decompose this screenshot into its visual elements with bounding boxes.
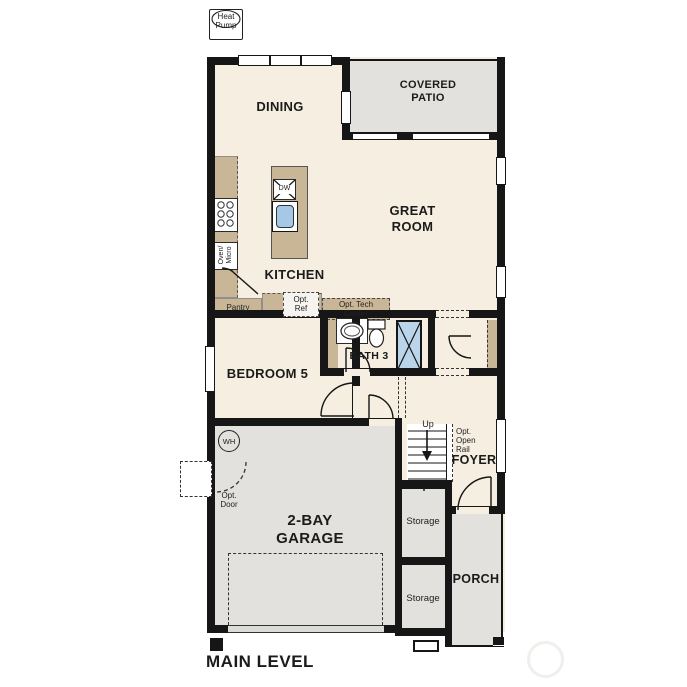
- bath-door-opening: [344, 369, 370, 376]
- main-level-label: MAIN LEVEL: [206, 652, 366, 673]
- patio-slider-east: [412, 133, 490, 140]
- dishwasher-label: DW: [276, 185, 293, 194]
- up-label: Up: [414, 419, 442, 429]
- kitchen-sink-basin: [276, 205, 294, 228]
- porch-post: [493, 637, 504, 648]
- bedroom5-label: BEDROOM 5: [205, 366, 330, 382]
- service-step: [413, 640, 439, 652]
- wall-storage-divider: [401, 557, 446, 565]
- legend-square: [210, 638, 223, 651]
- opt-door-dashed-stoop: [180, 461, 212, 497]
- front-door-opening: [456, 507, 489, 514]
- wall-left: [207, 57, 215, 632]
- dining-label: DINING: [215, 99, 345, 115]
- opt-door-label: Opt. Door: [209, 491, 249, 509]
- bath3-label: BATH 3: [338, 350, 400, 363]
- opt-tech-center-label: Opt. Tech Center: [322, 300, 390, 318]
- porch-label: PORCH: [447, 572, 505, 587]
- kitchen-label: KITCHEN: [262, 267, 327, 283]
- window-greatroom-2: [496, 266, 506, 298]
- patio-slider-west: [352, 133, 398, 140]
- window-greatroom-1: [496, 157, 506, 185]
- garage-label: 2-BAY GARAGE: [245, 512, 375, 549]
- window-mullion: [269, 55, 271, 66]
- foyer-label: FOYER: [445, 453, 503, 468]
- window-mullion: [300, 55, 302, 66]
- opt-ref-box: Opt. Ref: [283, 292, 319, 317]
- bedroom5-door-opening: [353, 386, 360, 418]
- shower: [396, 320, 422, 372]
- garage-door-dashed-zone: [228, 553, 383, 625]
- closet-opening-top: [436, 310, 469, 318]
- water-heater-label: WH: [218, 437, 240, 446]
- wall-patio-east: [497, 57, 505, 135]
- great-room-label: GREAT ROOM: [375, 203, 450, 235]
- cooktop: [213, 198, 238, 232]
- hall-foyer-opening: [398, 377, 406, 418]
- pantry-label: Pantry: [214, 303, 262, 312]
- oven-micro-label: Oven/ Micro: [218, 237, 234, 273]
- wall-storage2-bottom: [401, 628, 446, 636]
- storage-2-label: Storage: [399, 594, 447, 605]
- floor-plan: Heat Pump DINING COVERED PATIO GREAT ROO…: [0, 0, 687, 687]
- storage-1-label: Storage: [399, 517, 447, 528]
- garage-door-opening: [369, 419, 395, 426]
- stairs: [407, 424, 446, 481]
- window-dining-top: [238, 55, 332, 66]
- closet-opening-bottom: [436, 368, 469, 376]
- garage-overhead-door: [228, 625, 384, 633]
- wall-closet-west: [428, 318, 435, 376]
- watermark-circle: [527, 641, 564, 678]
- opt-open-rail-label: Opt. Open Rail: [456, 427, 490, 455]
- heat-pump-label: Heat Pump: [209, 12, 243, 30]
- covered-patio-label: COVERED PATIO: [383, 79, 473, 106]
